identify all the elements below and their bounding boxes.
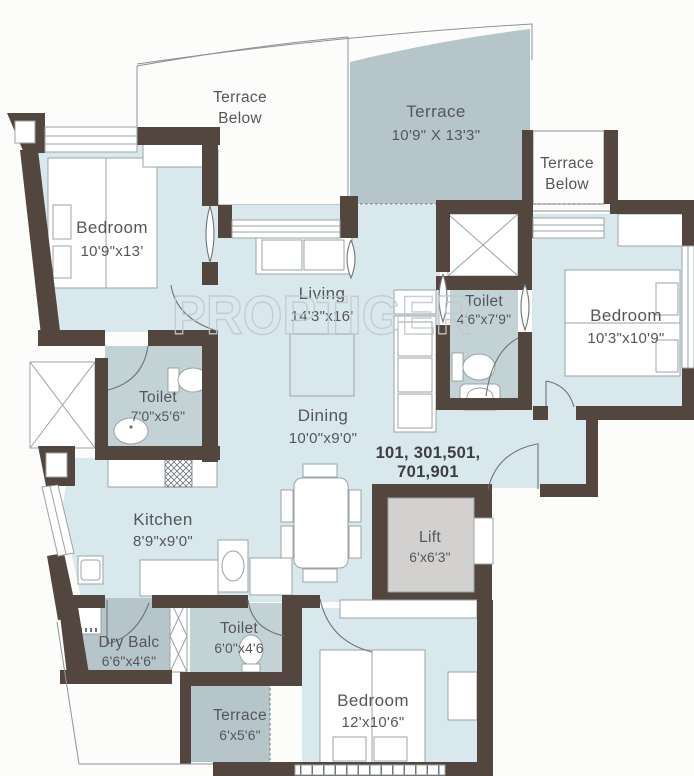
label-lift: Lift bbox=[419, 529, 441, 546]
watermark-text: PROPTIGER bbox=[172, 284, 472, 346]
kitchen-counter bbox=[140, 560, 218, 596]
wall-bedroom-right-side bbox=[682, 200, 694, 246]
kitchen-counter bbox=[108, 458, 217, 487]
label-terrace-main-dim: 10'9" X 13'3" bbox=[392, 127, 481, 144]
label-dry-balcony-dim: 6'6"x4'6" bbox=[102, 654, 156, 669]
wall-bedroom-left-bottom bbox=[38, 330, 105, 346]
terrace-bottom-floor bbox=[190, 686, 270, 762]
label-unit-numbers: 101, 301,501, bbox=[376, 444, 481, 462]
label-toilet-master: Toilet bbox=[139, 389, 177, 406]
chair-icon bbox=[349, 526, 361, 558]
wall-toilet-common-right bbox=[518, 214, 532, 280]
label-unit-numbers-2: 701,901 bbox=[397, 463, 459, 481]
pillow-icon bbox=[53, 246, 71, 278]
wc-tank-icon bbox=[242, 664, 260, 672]
wall-toilet-common-left bbox=[436, 214, 450, 272]
side-wardrobe-niche bbox=[448, 672, 477, 720]
shaft-box bbox=[170, 600, 187, 672]
wardrobe-niche bbox=[340, 600, 477, 618]
chair-icon bbox=[303, 569, 337, 582]
label-bedroom-bottom-dim: 12'x10'6" bbox=[342, 714, 405, 731]
label-bedroom-bottom: Bedroom bbox=[337, 691, 409, 710]
window-band bbox=[232, 220, 340, 238]
label-bedroom-right-dim: 10'3"x10'9" bbox=[587, 330, 664, 347]
label-terrace-below-left: Terrace bbox=[213, 89, 267, 106]
wall-kitchen-bottom bbox=[152, 595, 248, 608]
pillow-icon bbox=[53, 205, 71, 239]
wall-bedroom-right-bottom bbox=[576, 406, 694, 420]
wall-toilet-master-bottom bbox=[95, 446, 220, 460]
wall-toilet-common-bottom bbox=[436, 398, 532, 410]
wall-terrace-door-jamb bbox=[340, 196, 358, 238]
wash-basin-icon bbox=[222, 551, 244, 581]
toilet-bottom-floor bbox=[190, 603, 282, 672]
wall-bedroom-right-bottom bbox=[533, 406, 548, 420]
label-toilet-bottom: Toilet bbox=[220, 620, 258, 637]
door-leaf-bedroom-right-icon bbox=[521, 284, 529, 330]
sink-basin-icon bbox=[81, 560, 100, 580]
wall-divider bbox=[202, 332, 218, 462]
label-terrace-bottom: Terrace bbox=[213, 707, 267, 724]
wall-bedroom-bottom-right bbox=[477, 600, 493, 776]
label-dry-balcony: Dry Balc bbox=[99, 634, 160, 651]
sofa-cushion bbox=[398, 394, 432, 428]
label-lift-dim: 6'x6'3" bbox=[409, 550, 450, 565]
wall-shaft-top bbox=[436, 200, 524, 214]
duct-shaft-bottom bbox=[170, 600, 187, 672]
label-terrace-below-right: Terrace bbox=[540, 155, 594, 172]
floor-plan-page: Terrace Below Terrace 10'9" X 13'3" Terr… bbox=[0, 0, 694, 776]
wall-window-inset bbox=[46, 453, 67, 477]
wall-kitchen-bottom bbox=[282, 595, 320, 608]
pillow-icon bbox=[374, 737, 407, 761]
label-bedroom-right: Bedroom bbox=[590, 306, 662, 325]
wall-divider bbox=[202, 262, 218, 285]
wall-corridor-right bbox=[586, 418, 598, 497]
tap-icon bbox=[129, 425, 132, 428]
sofa-cushion bbox=[262, 240, 302, 270]
wall-window-jamb bbox=[604, 130, 618, 204]
wall-dry-balcony-bottom bbox=[60, 670, 172, 684]
label-kitchen: Kitchen bbox=[133, 510, 193, 529]
wardrobe-niche bbox=[618, 214, 686, 246]
floor-plan-drawing: Terrace Below Terrace 10'9" X 13'3" Terr… bbox=[0, 0, 694, 776]
wall-toilet-common-right bbox=[518, 332, 532, 410]
wall-bedroom-right-side bbox=[682, 368, 694, 420]
chair-icon bbox=[281, 526, 293, 558]
label-toilet-master-dim: 7'0"x5'6" bbox=[131, 409, 185, 424]
label-terrace-bottom-dim: 6'x5'6" bbox=[219, 728, 260, 743]
label-bedroom-left: Bedroom bbox=[76, 218, 148, 237]
dining-table-icon bbox=[294, 478, 348, 568]
label-terrace-main: Terrace bbox=[406, 102, 466, 121]
wall-divider bbox=[202, 127, 218, 206]
wall-window-inset bbox=[15, 121, 35, 143]
lift-door-opening bbox=[474, 518, 493, 564]
label-dining: Dining bbox=[298, 406, 349, 425]
label-bedroom-left-dim: 10'9"x13' bbox=[81, 243, 144, 260]
window-band bbox=[45, 127, 137, 152]
label-terrace-below-left-2: Below bbox=[218, 110, 262, 127]
chair-icon bbox=[281, 490, 293, 522]
sofa-cushion bbox=[398, 358, 432, 392]
wall-living-top-nub bbox=[218, 205, 232, 238]
label-dining-dim: 10'0"x9'0" bbox=[289, 430, 358, 447]
wall-kitchen-bottom bbox=[58, 595, 105, 608]
wardrobe-niche bbox=[143, 143, 212, 167]
label-toilet-bottom-dim: 6'0"x4'6 bbox=[214, 641, 263, 656]
wall-terrace-bottom-left bbox=[180, 686, 191, 764]
label-kitchen-dim: 8'9"x9'0" bbox=[133, 533, 193, 550]
window-band bbox=[533, 218, 604, 238]
chair-icon bbox=[303, 464, 337, 477]
duct-shaft-right bbox=[448, 214, 518, 276]
wall-terrace-bottom-top bbox=[180, 672, 302, 686]
wall-bedroom-right-top bbox=[610, 200, 694, 214]
sofa-cushion bbox=[304, 240, 344, 270]
duct-shaft-left bbox=[30, 362, 95, 448]
wall-shaft-side bbox=[95, 358, 108, 450]
label-terrace-below-right-2: Below bbox=[545, 176, 589, 193]
wc-tank-icon bbox=[452, 353, 463, 381]
pillow-icon bbox=[333, 737, 366, 761]
wall-foyer-bottom bbox=[440, 484, 488, 497]
chair-icon bbox=[349, 490, 361, 522]
fridge-space bbox=[250, 558, 292, 595]
hob-icon bbox=[165, 458, 192, 487]
